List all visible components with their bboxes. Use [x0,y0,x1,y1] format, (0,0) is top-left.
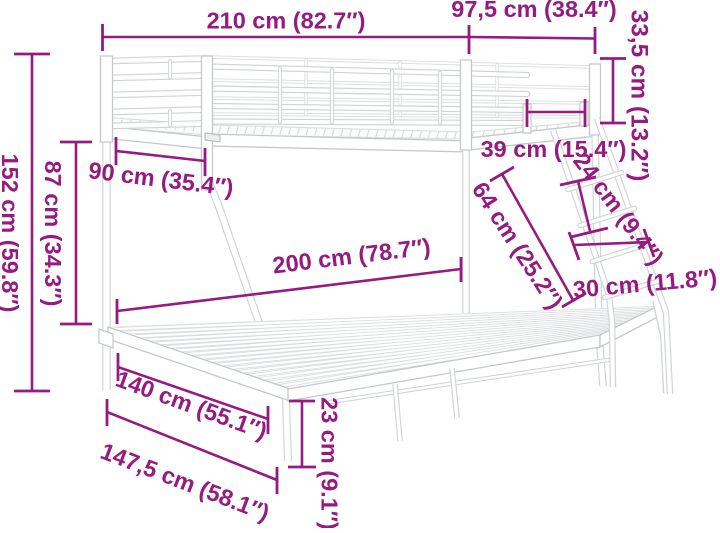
svg-text:33,5 cm (13.2″): 33,5 cm (13.2″) [626,10,653,182]
svg-text:200 cm (78.7″): 200 cm (78.7″) [271,233,432,278]
svg-text:30 cm (11.8″): 30 cm (11.8″) [572,264,718,302]
svg-text:87 cm (34.3″): 87 cm (34.3″) [40,161,66,307]
svg-text:23 cm (9.1″): 23 cm (9.1″) [317,397,343,528]
svg-text:97,5 cm (38.4″): 97,5 cm (38.4″) [451,0,616,22]
svg-text:64 cm (25.2″): 64 cm (25.2″) [467,177,568,313]
svg-text:39 cm (15.4″): 39 cm (15.4″) [481,136,627,162]
svg-text:210 cm (82.7″): 210 cm (82.7″) [207,8,366,34]
svg-text:147,5 cm (58.1″): 147,5 cm (58.1″) [97,438,273,526]
svg-text:152 cm (59.8″): 152 cm (59.8″) [0,154,23,313]
